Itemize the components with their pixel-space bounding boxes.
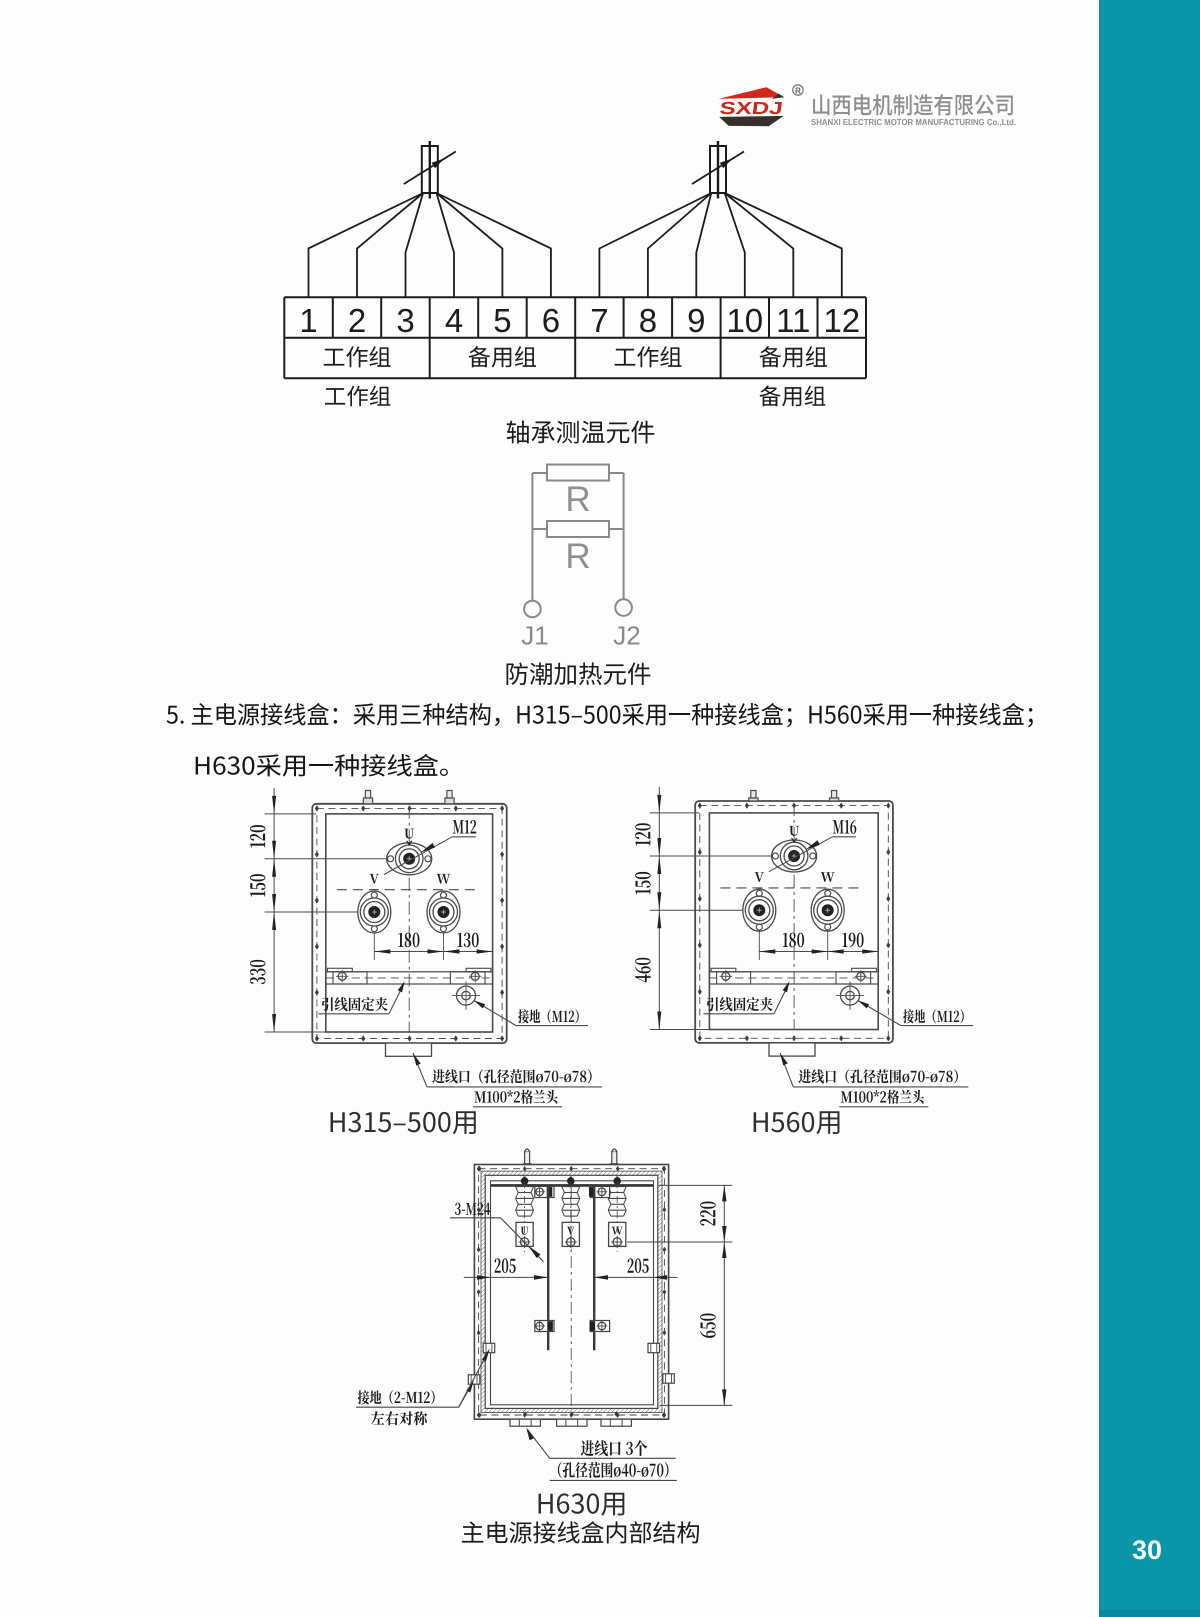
svg-text:8: 8	[639, 302, 657, 339]
svg-text:J2: J2	[613, 621, 640, 651]
svg-text:R: R	[565, 537, 590, 576]
svg-text:11: 11	[776, 302, 810, 339]
svg-text:R: R	[565, 480, 590, 519]
svg-text:9: 9	[687, 302, 705, 339]
svg-text:4: 4	[445, 302, 463, 339]
svg-text:10: 10	[726, 302, 763, 339]
svg-text:SHANXI ELECTRIC MOTOR MANUFACT: SHANXI ELECTRIC MOTOR MANUFACTURING Co.,…	[811, 117, 1016, 127]
svg-text:7: 7	[590, 302, 608, 339]
svg-text:J1: J1	[521, 621, 548, 651]
svg-text:30: 30	[1132, 1535, 1162, 1565]
svg-text:R: R	[795, 87, 801, 96]
svg-text:1: 1	[299, 302, 317, 339]
svg-text:5: 5	[493, 302, 511, 339]
svg-text:SXDJ: SXDJ	[719, 98, 784, 118]
svg-text:3: 3	[396, 302, 414, 339]
svg-text:6: 6	[542, 302, 560, 339]
svg-text:12: 12	[823, 302, 860, 339]
svg-text:2: 2	[348, 302, 366, 339]
